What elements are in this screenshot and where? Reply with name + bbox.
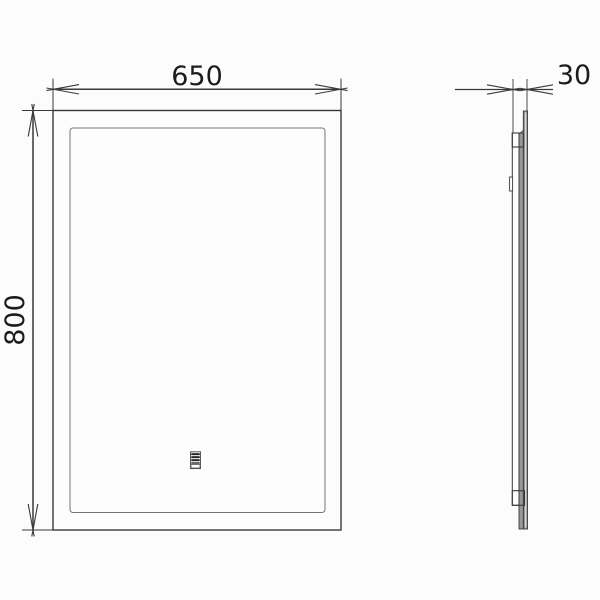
touch-sensor-stripe [191,459,199,461]
side-mounting-clip [510,177,513,191]
side-glass-back [519,133,523,529]
touch-sensor-icon [191,452,201,469]
side-view [510,111,528,529]
touch-sensor-base [191,465,200,468]
height-dimension-label: 800 [0,294,31,346]
front-view [53,111,341,531]
touch-sensor-stripe [191,456,199,458]
drawing-page: 650 800 [0,0,600,600]
width-dimension: 650 [47,61,348,111]
width-dimension-label: 650 [171,61,223,92]
touch-sensor-stripe [191,453,199,455]
depth-dimension-label: 30 [557,60,591,91]
technical-drawing-canvas: 650 800 [0,0,600,600]
touch-sensor-stripe [191,462,199,464]
side-frame-profile [512,133,519,505]
height-dimension: 800 [0,104,53,537]
